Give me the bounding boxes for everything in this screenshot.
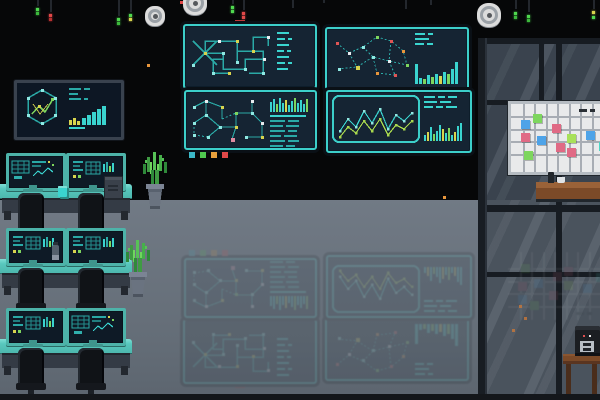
monitor-base [83,264,103,267]
line-chart [332,95,420,143]
chair-back [78,193,104,231]
floor-edge-shadow [0,394,600,400]
machine-front-panel [580,341,594,352]
bar-chart [270,96,311,112]
reflection-dot [512,329,515,332]
partition-h-frame-3 [487,272,600,277]
screen-trend-charts[interactable] [326,90,472,153]
desk-monitor[interactable] [66,308,120,348]
partition-sub-frame [539,44,544,100]
desk-leg [4,211,11,220]
marker-scribble [579,109,587,112]
bar-chart [415,48,461,84]
desk-leg [121,366,128,375]
sticky-note[interactable] [524,151,533,160]
cable-led [231,6,234,9]
monitor-base [23,344,43,347]
light-core [487,13,492,18]
screen-network-stats[interactable] [184,90,317,150]
sticky-note[interactable] [521,133,530,142]
sticky-note[interactable] [586,131,595,140]
ceiling-light [477,3,501,27]
chair-back [18,348,44,386]
screen-text-lines [270,120,311,147]
shelf-front [536,188,600,199]
screen-network-map[interactable] [183,24,317,89]
whiteboard-calendar[interactable] [508,101,600,175]
cable-led [514,12,517,15]
partition-vertical-frame [556,44,562,396]
sticky-note[interactable] [552,124,561,133]
cable-led [242,16,245,19]
wall-dot [443,196,446,199]
desk-item-bottle[interactable] [52,245,59,260]
calendar-line [557,104,559,172]
office-chair[interactable] [76,348,106,400]
ceiling-cable [405,0,407,9]
ceiling-cable [430,0,432,5]
screen-legend-lines [415,33,461,45]
screen-text-lines [424,96,466,108]
ceiling-cable [528,0,530,12]
cable-led [527,19,530,22]
ceiling-cable [232,0,234,4]
monitor-base [83,344,103,347]
bar-chart [424,111,466,141]
machine-power-led [589,335,591,337]
desk-leg [121,211,128,220]
chair-back [18,268,44,306]
metro-map-diagram [188,29,274,81]
ceiling-cable [292,0,294,8]
machine-status-led [583,335,585,337]
desk-monitor[interactable] [6,308,60,348]
reflection-dot [524,317,527,320]
calendar-line [580,104,582,172]
cable-led [592,16,595,19]
monitor-base [23,264,43,267]
cable-led [514,16,517,19]
sticky-note[interactable] [533,114,542,123]
wall-screen-cluster [183,20,468,160]
sticky-note[interactable] [567,134,576,143]
cable-tag [235,20,245,23]
screen-legend-lines [277,32,309,74]
sticky-note[interactable] [556,143,565,152]
office-chair[interactable] [16,348,46,400]
coffee-machine[interactable] [575,326,600,356]
workstation-row [0,308,135,400]
monitor-base [83,189,103,192]
ceiling-cable [323,0,325,3]
chair-back [18,193,44,231]
sticky-note[interactable] [521,120,530,129]
monitor-base [23,189,43,192]
cable-led [231,10,234,13]
bottle[interactable] [548,172,554,183]
ceiling-cable [515,0,517,9]
calendar-line [511,116,600,118]
chair-seat [16,383,46,390]
desk-item-pc[interactable] [104,176,123,199]
status-indicator-lights [189,152,228,158]
partition-pillar [478,38,487,396]
cable-led [592,11,595,14]
cable-led [242,12,245,15]
sticky-note[interactable] [537,136,546,145]
cup[interactable] [557,177,565,183]
chair-seat [76,383,106,390]
light-core [193,1,198,6]
cable-led [527,15,530,18]
chair-back [78,268,104,306]
ceiling-cable [593,0,595,9]
desk-monitor[interactable] [6,153,60,193]
potted-plant [121,238,155,302]
ceiling-cable [243,0,245,10]
screen-node-graph[interactable] [325,27,469,90]
desk-monitor[interactable] [66,228,120,268]
desk-leg [4,286,11,295]
chair-back [78,348,104,386]
potted-plant [138,150,172,214]
node-graph-diagram [329,31,413,83]
chart-baseline [270,115,306,117]
network-diagram [188,93,268,145]
desk-leg [4,366,11,375]
marker-scribble [590,109,595,112]
wall-dot [180,1,183,4]
reflection-dot [519,305,522,308]
partition-h-frame-2 [487,205,600,212]
sticky-note[interactable] [567,148,576,157]
scene-control-room [0,0,600,400]
wall-shelf [536,182,600,202]
desk-item-mug[interactable] [58,186,67,197]
